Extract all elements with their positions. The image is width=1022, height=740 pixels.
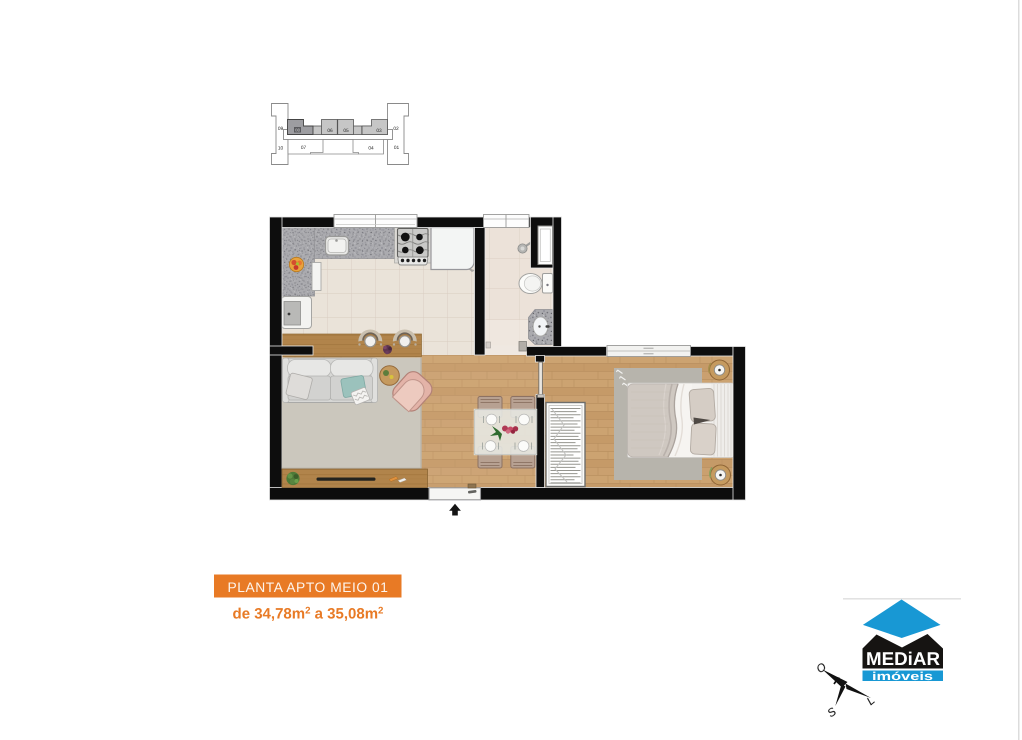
svg-text:03: 03 [376,128,382,134]
svg-text:imóveis: imóveis [872,671,933,683]
svg-text:08: 08 [295,128,300,133]
svg-text:09: 09 [278,126,284,132]
svg-text:02: 02 [393,126,399,132]
svg-text:05: 05 [343,128,349,134]
svg-text:10: 10 [278,145,284,151]
svg-text:06: 06 [327,128,333,134]
svg-text:PLANTA APTO MEIO 01: PLANTA APTO MEIO 01 [228,580,389,595]
svg-text:04: 04 [368,145,374,151]
svg-text:01: 01 [394,145,400,151]
svg-text:MEDiAR: MEDiAR [866,648,940,669]
svg-text:07: 07 [301,145,307,151]
